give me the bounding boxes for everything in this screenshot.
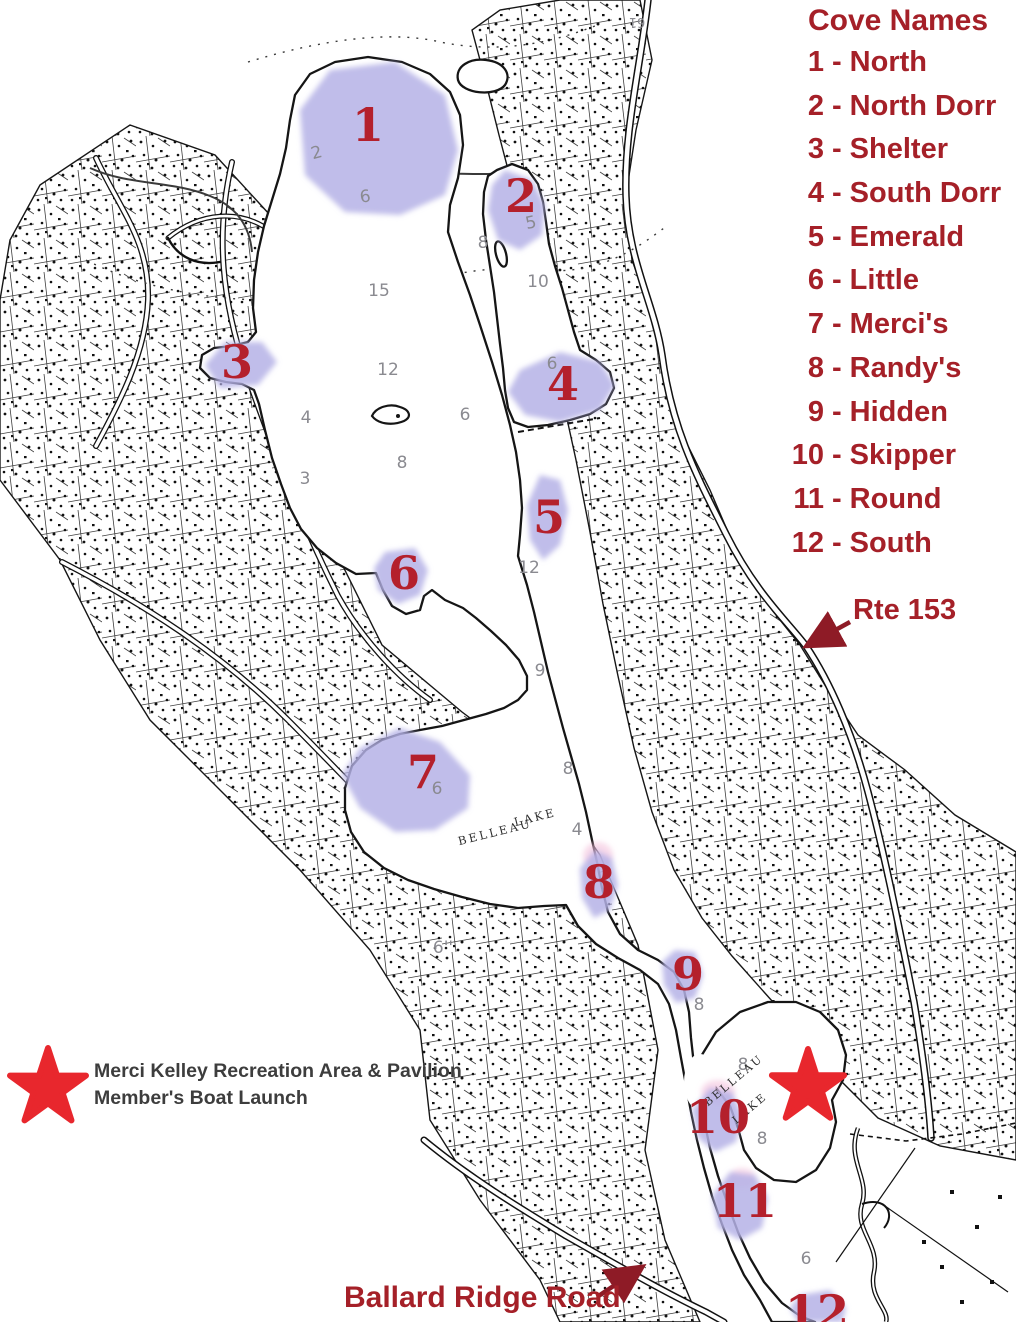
cove-number: 10	[686, 1090, 750, 1144]
legend-title: Cove Names	[780, 4, 1016, 38]
legend-entry: 2-North Dorr	[780, 90, 1016, 134]
depth-number: 3	[300, 469, 311, 489]
cove-number: 8	[583, 855, 615, 909]
boat-launch-caption-line2: Member's Boat Launch	[94, 1085, 462, 1112]
island	[372, 405, 409, 423]
depth-number: 12	[377, 360, 399, 380]
legend-entry: 8-Randy's	[780, 352, 1016, 396]
survey-line	[836, 1148, 915, 1262]
depth-number: 8	[757, 1129, 768, 1149]
legend-entry: 12-South	[780, 527, 1016, 571]
cove-number: 6	[388, 546, 420, 600]
belleau-lake-map: 26158510124683612984688866''61 BELLEAULA…	[0, 0, 1016, 1322]
rte-153-label: Rte 153	[853, 594, 956, 627]
legend-entry: 1-North	[780, 46, 1016, 90]
cove-number: 12	[785, 1285, 849, 1322]
legend-entry: 3-Shelter	[780, 133, 1016, 177]
legend-entry: 10-Skipper	[780, 439, 1016, 483]
rte-153-arrow	[810, 622, 850, 644]
depth-number: 15	[368, 281, 390, 301]
depth-number: 4	[301, 408, 312, 428]
cove-number: 3	[221, 335, 253, 389]
boat-launch-caption: Merci Kelley Recreation Area & Pavilion …	[94, 1058, 462, 1112]
depth-number: 6''	[433, 938, 453, 958]
north-pond	[458, 60, 508, 93]
depth-number: 8	[478, 233, 489, 253]
legend-star	[10, 1048, 86, 1120]
river	[855, 1128, 887, 1322]
depth-number: 4	[572, 820, 583, 840]
depth-number: 6	[801, 1249, 812, 1269]
depth-number: 10	[527, 272, 549, 292]
legend-entry: 11-Round	[780, 483, 1016, 527]
ballard-ridge-road-label: Ballard Ridge Road	[344, 1281, 621, 1315]
cove-number: 9	[672, 947, 704, 1001]
depth-number: 61	[629, 14, 646, 29]
depth-number: 8	[563, 759, 574, 779]
depth-number: 9	[535, 661, 546, 681]
legend-entry: 4-South Dorr	[780, 177, 1016, 221]
depth-number: 8	[397, 453, 408, 473]
cove-names-legend: Cove Names 1-North2-North Dorr3-Shelter4…	[780, 4, 1016, 570]
cove-number: 7	[407, 745, 439, 799]
depth-number: 6	[460, 405, 471, 425]
legend-list: 1-North2-North Dorr3-Shelter4-South Dorr…	[780, 46, 1016, 570]
legend-entry: 5-Emerald	[780, 221, 1016, 265]
survey-line	[885, 1206, 1008, 1292]
cove-number: 11	[713, 1174, 777, 1228]
boat-launch-caption-line1: Merci Kelley Recreation Area & Pavilion	[94, 1058, 462, 1085]
legend-entry: 6-Little	[780, 264, 1016, 308]
legend-entry: 9-Hidden	[780, 396, 1016, 440]
cove-number: 4	[547, 357, 579, 411]
cove-number: 2	[505, 169, 537, 223]
cove-number: 5	[533, 490, 565, 544]
depth-number: 12	[518, 558, 540, 578]
cove-number: 1	[352, 98, 384, 152]
legend-entry: 7-Merci's	[780, 308, 1016, 352]
